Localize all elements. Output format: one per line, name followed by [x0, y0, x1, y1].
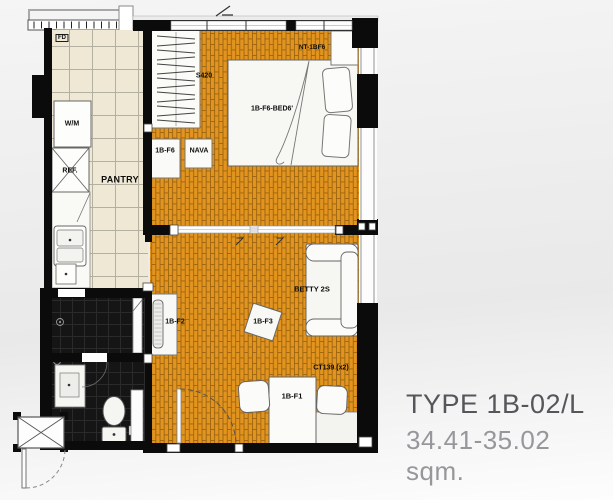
label-nightstand-code: NT-1BF6 [299, 45, 325, 52]
sideboard [316, 412, 363, 447]
service-shaft [13, 412, 68, 452]
window-right-3 [359, 235, 377, 303]
pillow [322, 67, 353, 113]
entry-door-leaf [177, 389, 181, 443]
window-right-1 [359, 48, 377, 74]
title-block: TYPE 1B-02/L 34.41-35.02 sqm. [406, 389, 613, 487]
window-right-2 [359, 128, 377, 220]
vanity [55, 365, 85, 407]
label-refrigerator: REF. [62, 168, 77, 175]
label-wardrobe-code: S420 [196, 73, 212, 80]
unit-area-subtitle: 34.41-35.02 sqm. [406, 425, 613, 487]
glass-partition [178, 226, 335, 234]
label-tv-console-code: 1B-F2 [165, 319, 184, 326]
label-nava-code: NAVA [190, 148, 209, 155]
unit-type-title: TYPE 1B-02/L [406, 389, 613, 420]
bed [228, 60, 358, 166]
floorplan-canvas: FD W/M REF. PANTRY S420 1B-F6 NAVA NT-1B… [0, 0, 613, 500]
wardrobe [151, 29, 200, 128]
label-bed-code: 1B-F6-BED6' [251, 106, 293, 113]
label-dining-table-code: 1B-F1 [282, 392, 303, 400]
window-top-a [171, 21, 286, 30]
label-sofa-code: BETTY 2S [294, 285, 330, 293]
label-coffee-table-code: 1B-F3 [253, 319, 272, 326]
shaft-door-leaf [22, 449, 26, 488]
chair [316, 385, 347, 415]
dining-table [269, 377, 316, 445]
window-top-b [296, 21, 352, 30]
label-washing-machine: W/M [65, 121, 79, 128]
label-cabinet-code: 1B-F6 [155, 148, 174, 155]
kitchen [52, 101, 91, 288]
shower-door [133, 298, 142, 353]
chair [238, 380, 270, 413]
label-pantry: PANTRY [101, 176, 139, 185]
cabinet-1b-f6 [151, 139, 180, 178]
pillow [322, 114, 352, 158]
label-floor-drain: FD [56, 34, 69, 42]
bath-sliding-door [131, 390, 143, 442]
label-curtain-code: CT139 (x2) [313, 365, 348, 372]
shaft-door-swing [26, 449, 65, 488]
